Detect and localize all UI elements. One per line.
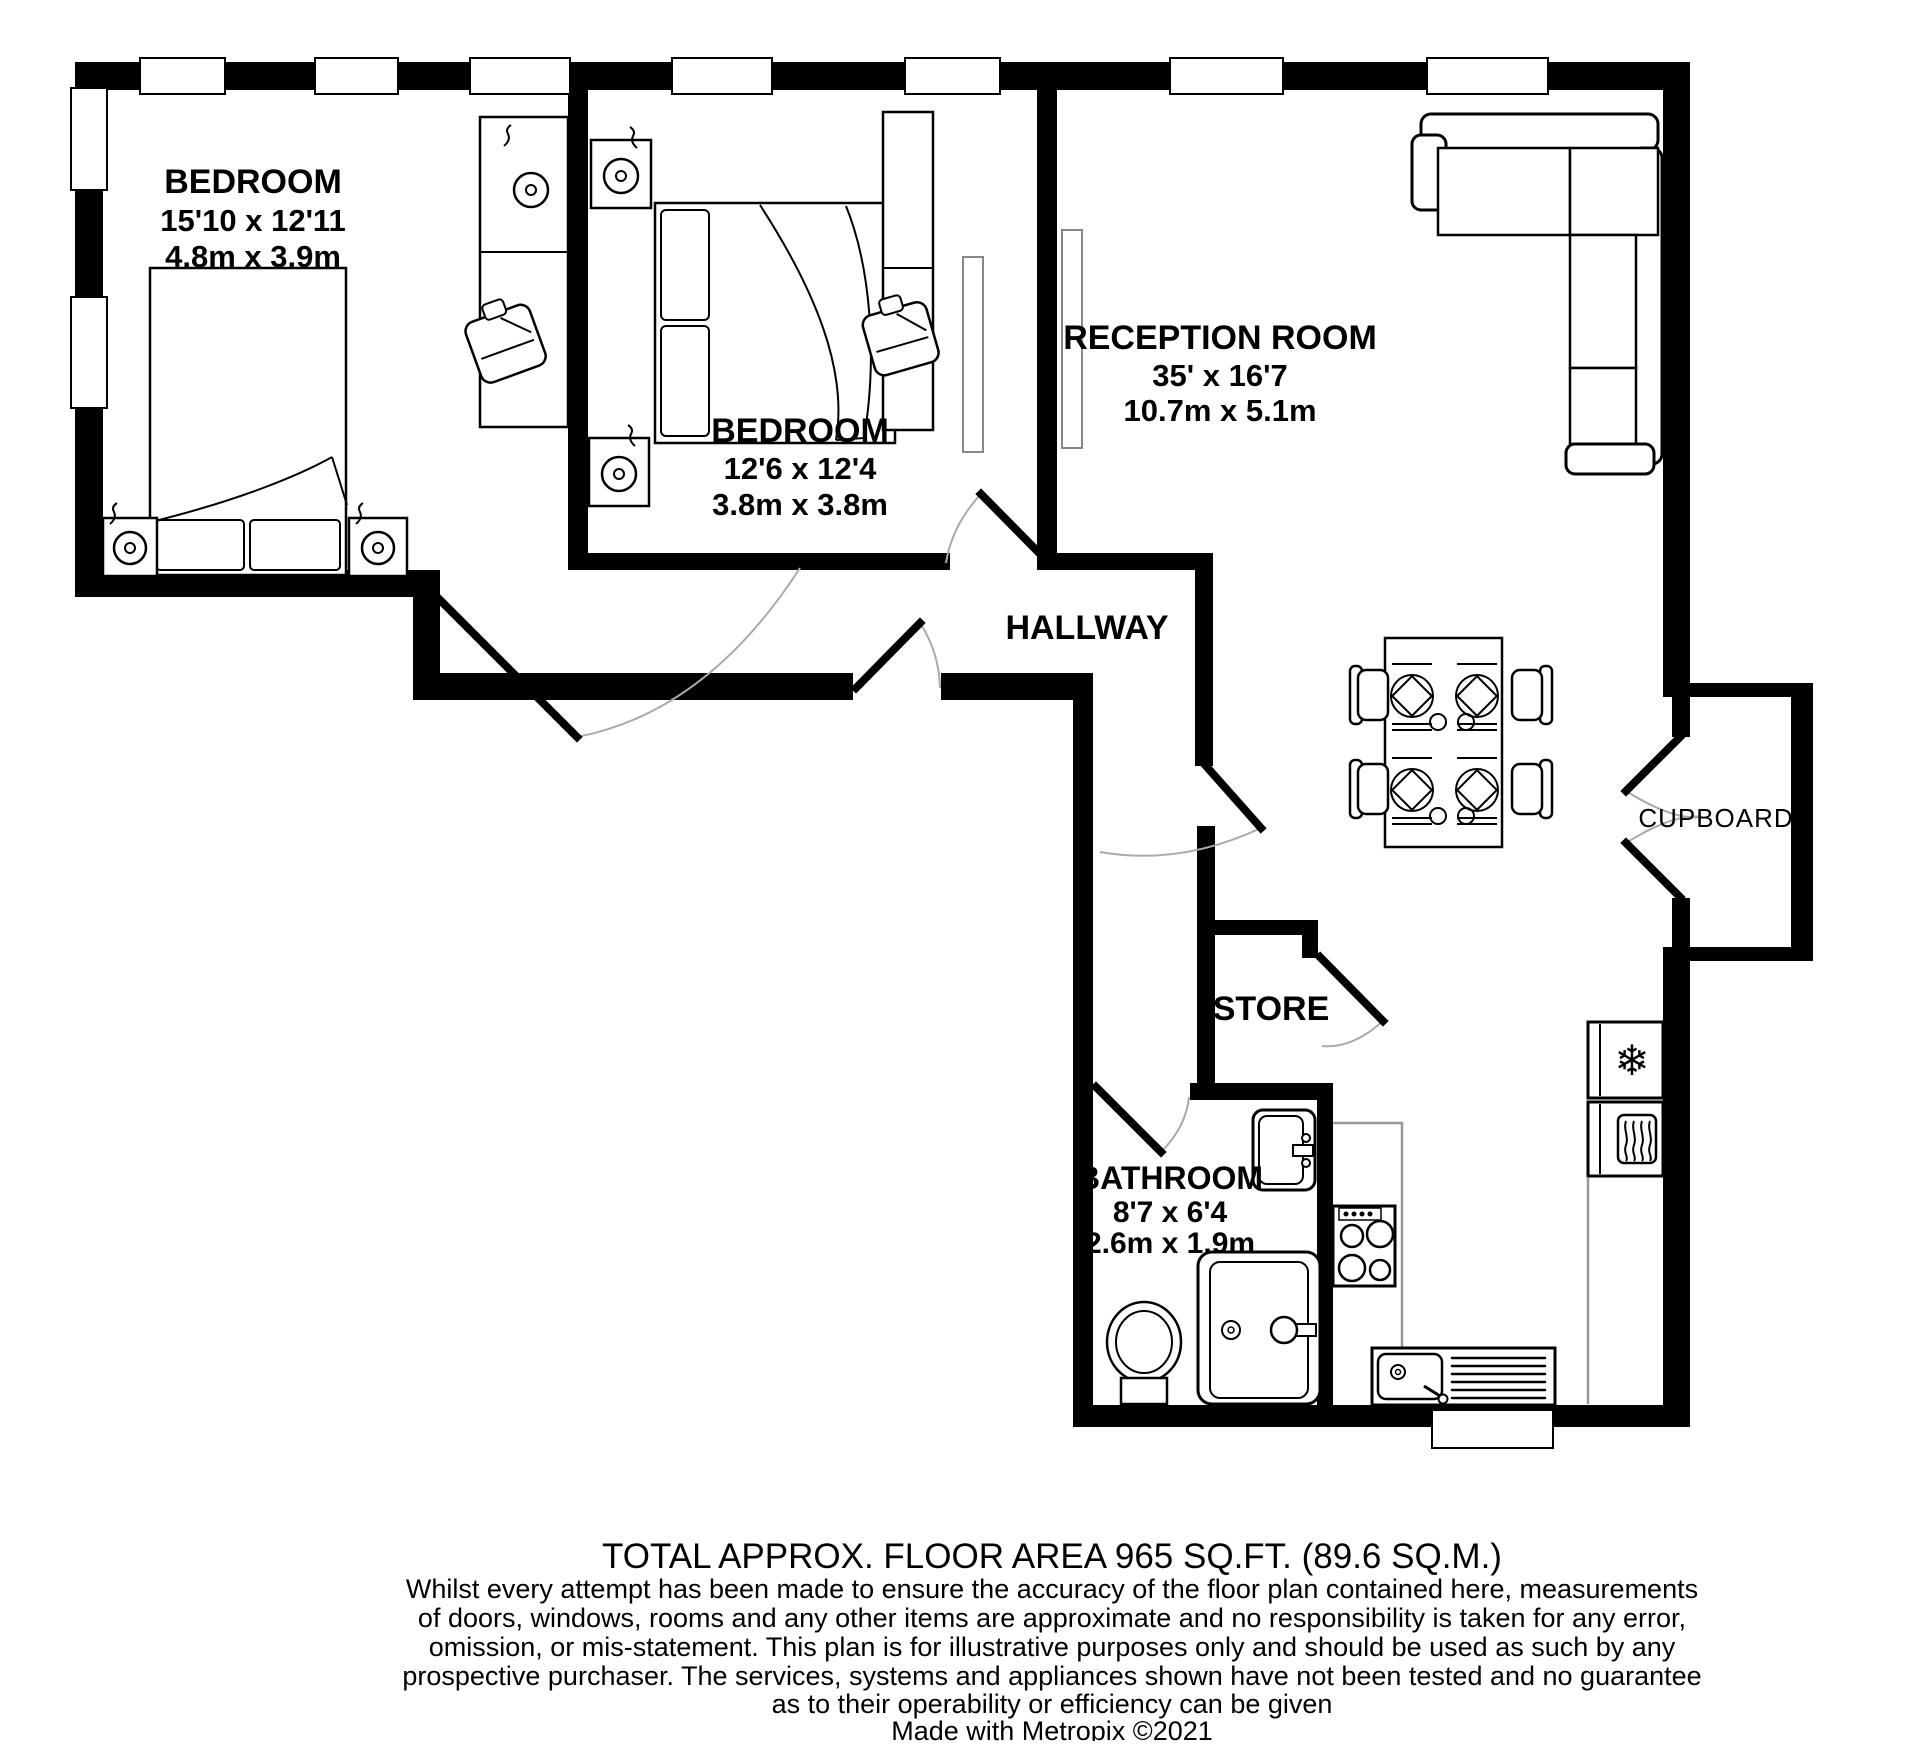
room-label-bedroom-2: BEDROOM bbox=[711, 412, 889, 450]
door-leaf bbox=[432, 592, 577, 737]
wall-segment bbox=[1073, 1405, 1690, 1427]
room-label-reception: RECEPTION ROOM bbox=[1063, 319, 1377, 357]
wardrobe-unit bbox=[883, 112, 933, 430]
pillow bbox=[661, 326, 709, 436]
oven-icon bbox=[1588, 1102, 1663, 1176]
window bbox=[672, 58, 772, 94]
wall-segment bbox=[1212, 920, 1318, 935]
nightstand-lamp-icon bbox=[349, 503, 407, 576]
radiator bbox=[963, 257, 983, 452]
kitchen-sink-icon bbox=[1372, 1348, 1555, 1405]
hob-icon bbox=[1333, 1206, 1395, 1286]
dining-table-icon bbox=[1350, 638, 1552, 847]
nightstand-lamp-icon bbox=[589, 425, 649, 506]
window bbox=[1427, 58, 1548, 94]
wall-segment bbox=[568, 90, 588, 553]
room-label-store: STORE bbox=[1213, 990, 1330, 1028]
bathtub-icon bbox=[1198, 1252, 1320, 1404]
window bbox=[71, 297, 107, 408]
door-swing-arc bbox=[577, 568, 800, 737]
snowflake-icon: ❄ bbox=[1614, 1037, 1649, 1084]
room-label-cupboard: CUPBOARD bbox=[1638, 803, 1793, 833]
room-label-hallway: HALLWAY bbox=[1005, 609, 1168, 647]
fridge-icon: ❄ bbox=[1588, 1022, 1663, 1098]
wall-segment bbox=[1663, 947, 1690, 1427]
doors bbox=[432, 494, 1702, 1152]
room-size-metric: 3.8m x 3.8m bbox=[712, 487, 888, 522]
wall-segment bbox=[1190, 1083, 1333, 1100]
room-size-imperial: 8'7 x 6'4 bbox=[1113, 1196, 1228, 1229]
wall-segment bbox=[1791, 683, 1813, 961]
kitchen-fixtures: ❄ bbox=[1333, 1022, 1663, 1405]
window bbox=[315, 58, 398, 94]
toilet-icon bbox=[1107, 1302, 1181, 1404]
door-swing-arc bbox=[1100, 828, 1261, 856]
wall-segment bbox=[1037, 553, 1213, 570]
dining-chair-icon bbox=[1512, 666, 1552, 724]
wall-segment bbox=[1197, 826, 1215, 1083]
wall-segment bbox=[1676, 947, 1813, 961]
door-leaf bbox=[1206, 766, 1261, 828]
window bbox=[140, 58, 225, 94]
door-leaf bbox=[1320, 957, 1383, 1021]
pillow bbox=[250, 520, 340, 570]
dining-chair-icon bbox=[1350, 666, 1388, 724]
pillow bbox=[661, 210, 709, 320]
footer-disclaimer-line: Whilst every attempt has been made to en… bbox=[406, 1574, 1698, 1604]
window bbox=[470, 58, 570, 94]
door-swing-arc bbox=[920, 623, 940, 688]
floorplan-canvas: ❄ bbox=[0, 0, 1920, 1741]
floorplan-page: ❄ bbox=[0, 0, 1920, 1741]
door-swing-arc bbox=[946, 494, 981, 563]
room-label-bathroom: BATHROOM bbox=[1077, 1160, 1263, 1196]
nightstand-lamp-icon bbox=[591, 127, 651, 208]
wall-segment bbox=[1037, 90, 1057, 570]
room-size-metric: 2.6m x 1.9m bbox=[1085, 1227, 1255, 1260]
wall-segment bbox=[1672, 683, 1690, 737]
wall-segment bbox=[568, 553, 950, 570]
footer-disclaimer-line: as to their operability or efficiency ca… bbox=[772, 1689, 1333, 1719]
room-size-imperial: 15'10 x 12'11 bbox=[160, 203, 345, 238]
window bbox=[905, 58, 1000, 94]
room-label-bedroom-1: BEDROOM bbox=[164, 163, 342, 201]
footer-disclaimer-line: of doors, windows, rooms and any other i… bbox=[418, 1603, 1686, 1633]
room-size-metric: 10.7m x 5.1m bbox=[1123, 393, 1316, 428]
door-leaf bbox=[1096, 1087, 1161, 1152]
door-leaf bbox=[1626, 737, 1680, 791]
double-bed-icon bbox=[150, 268, 347, 575]
window bbox=[1432, 1410, 1553, 1448]
footer-credit: Made with Metropix ©2021 bbox=[891, 1716, 1213, 1741]
door-leaf bbox=[1626, 843, 1680, 897]
pillow bbox=[156, 520, 244, 570]
door-swing-arc bbox=[1322, 1021, 1383, 1046]
dining-chair-icon bbox=[1512, 760, 1552, 818]
footer-disclaimer-line: omission, or mis-statement. This plan is… bbox=[429, 1632, 1676, 1662]
room-size-metric: 4.8m x 3.9m bbox=[165, 239, 341, 274]
room-size-imperial: 35' x 16'7 bbox=[1152, 358, 1287, 393]
door-swing-arc bbox=[1161, 1097, 1189, 1152]
wall-segment bbox=[1302, 935, 1318, 958]
wall-segment bbox=[1663, 62, 1690, 697]
room-size-imperial: 12'6 x 12'4 bbox=[724, 451, 877, 486]
footer-area-title: TOTAL APPROX. FLOOR AREA 965 SQ.FT. (89.… bbox=[602, 1537, 1502, 1576]
footer-disclaimer-line: prospective purchaser. The services, sys… bbox=[402, 1661, 1701, 1691]
window bbox=[1170, 58, 1283, 94]
wall-segment bbox=[941, 673, 1093, 700]
corner-sofa-icon bbox=[1412, 114, 1662, 474]
wall-segment bbox=[413, 673, 853, 700]
window bbox=[71, 88, 107, 190]
reception-furniture bbox=[1062, 114, 1662, 847]
door-leaf bbox=[981, 494, 1043, 557]
wall-segment bbox=[1073, 673, 1093, 1405]
door-leaf bbox=[856, 623, 920, 688]
double-bed-icon bbox=[655, 203, 895, 443]
dining-chair-icon bbox=[1350, 760, 1388, 818]
wall-segment bbox=[1195, 553, 1213, 766]
